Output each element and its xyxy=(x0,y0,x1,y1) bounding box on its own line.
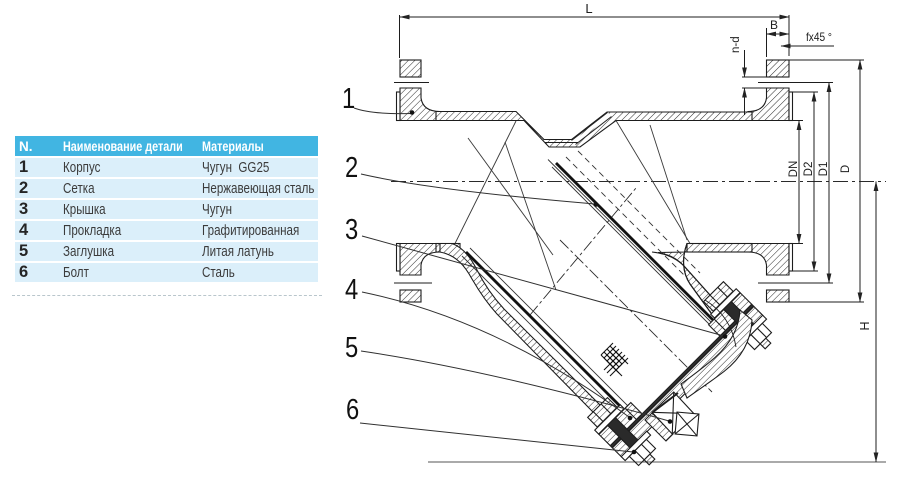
svg-text:fx45 °: fx45 ° xyxy=(806,31,832,44)
svg-text:B: B xyxy=(770,18,778,32)
svg-text:H: H xyxy=(858,321,872,330)
svg-text:6: 6 xyxy=(346,393,359,426)
svg-text:DN: DN xyxy=(788,161,800,178)
svg-text:n-d: n-d xyxy=(730,36,742,53)
svg-text:D: D xyxy=(840,165,852,173)
svg-text:L: L xyxy=(585,1,592,16)
svg-text:5: 5 xyxy=(345,331,358,364)
svg-text:3: 3 xyxy=(345,213,358,246)
svg-text:D2: D2 xyxy=(803,162,815,177)
svg-text:2: 2 xyxy=(345,151,358,184)
svg-text:D1: D1 xyxy=(818,162,830,177)
svg-text:4: 4 xyxy=(345,273,358,306)
svg-text:1: 1 xyxy=(342,82,355,115)
